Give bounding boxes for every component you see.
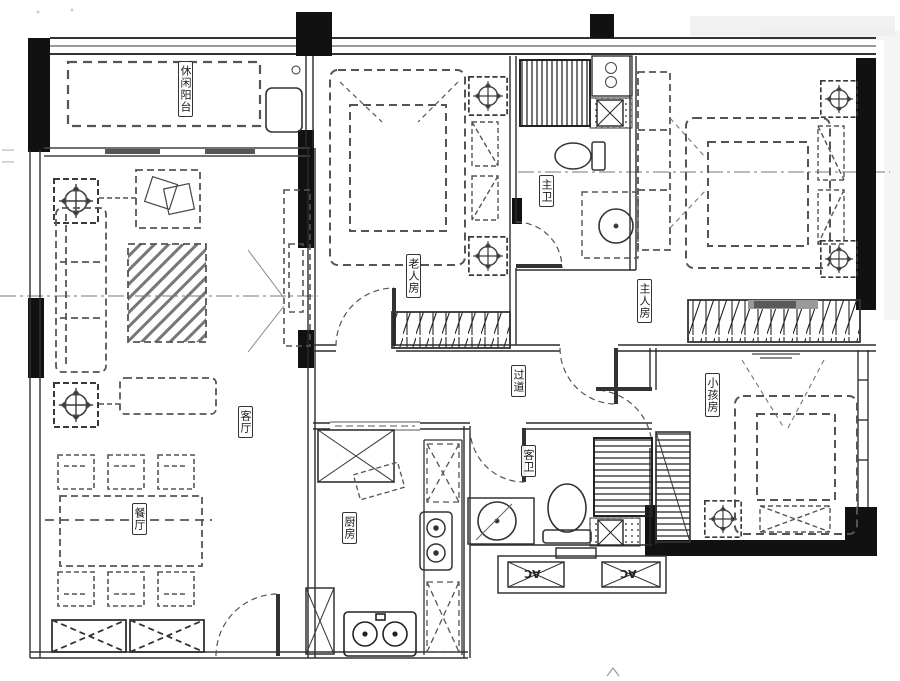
- room-label-elder-room: 老人房: [406, 254, 421, 298]
- floor-plan-drawing: [0, 0, 900, 681]
- room-label-dining: 餐厅: [132, 503, 147, 535]
- ac-label-left: AC: [524, 567, 541, 580]
- room-label-kids-room: 小孩房: [705, 373, 720, 417]
- room-label-balcony: 休闲阳台: [178, 61, 193, 117]
- room-label-guest-bath: 客卫: [521, 445, 536, 477]
- ac-label-right: AC: [620, 567, 637, 580]
- floor-drain: [590, 98, 632, 128]
- room-label-corridor: 过道: [511, 365, 526, 397]
- wardrobe: [392, 312, 510, 348]
- wardrobe: [688, 300, 860, 342]
- closet: [656, 432, 690, 542]
- room-label-master-bath: 主卫: [539, 175, 554, 207]
- shower: [520, 60, 590, 126]
- room-label-living: 客厅: [238, 406, 253, 438]
- floor-plan: 休闲阳台 客厅 餐厅 厨房 过道 主卫 客卫 老人房 主人房 小孩房 AC AC: [0, 0, 900, 681]
- rug: [128, 244, 206, 342]
- shower: [594, 438, 652, 516]
- room-label-master-room: 主人房: [637, 279, 652, 323]
- room-label-kitchen: 厨房: [342, 512, 357, 544]
- floor-drain: [590, 518, 640, 546]
